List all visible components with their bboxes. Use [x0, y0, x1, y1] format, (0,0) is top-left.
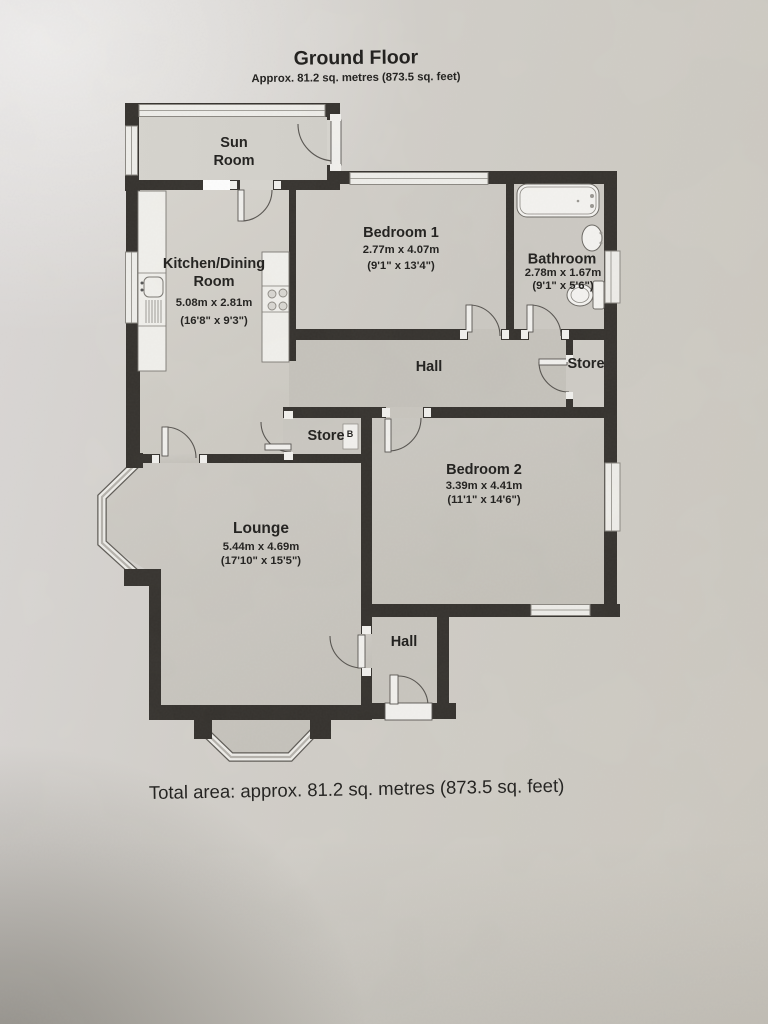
svg-text:Hall: Hall [391, 634, 418, 650]
svg-text:Store: Store [307, 428, 344, 444]
svg-text:Room: Room [193, 274, 234, 290]
svg-text:3.39m x 4.41m: 3.39m x 4.41m [446, 480, 523, 492]
svg-text:Sun: Sun [220, 135, 247, 151]
svg-text:Store: Store [567, 356, 604, 372]
svg-text:Room: Room [213, 153, 254, 169]
svg-text:Bedroom 1: Bedroom 1 [363, 225, 439, 241]
svg-text:(9'1" x 13'4"): (9'1" x 13'4") [367, 260, 435, 272]
svg-text:2.78m x 1.67m: 2.78m x 1.67m [525, 267, 602, 279]
svg-text:(17'10" x 15'5"): (17'10" x 15'5") [221, 555, 301, 567]
svg-text:Total area: approx. 81.2 sq. m: Total area: approx. 81.2 sq. metres (873… [149, 775, 565, 803]
svg-text:Bedroom 2: Bedroom 2 [446, 462, 522, 478]
svg-text:(9'1" x 5'6"): (9'1" x 5'6") [532, 280, 594, 292]
svg-text:(16'8" x 9'3"): (16'8" x 9'3") [180, 315, 248, 327]
svg-text:Lounge: Lounge [233, 520, 289, 537]
svg-text:(11'1" x 14'6"): (11'1" x 14'6") [447, 494, 520, 506]
svg-text:Ground Floor: Ground Floor [294, 46, 419, 69]
svg-text:Hall: Hall [416, 359, 443, 375]
svg-text:2.77m x 4.07m: 2.77m x 4.07m [363, 244, 440, 256]
svg-text:5.44m x 4.69m: 5.44m x 4.69m [223, 541, 300, 553]
svg-text:5.08m x 2.81m: 5.08m x 2.81m [176, 297, 253, 309]
svg-text:Kitchen/Dining: Kitchen/Dining [163, 256, 265, 272]
svg-text:B: B [347, 429, 354, 439]
svg-text:Approx. 81.2 sq. metres (873.5: Approx. 81.2 sq. metres (873.5 sq. feet) [251, 71, 460, 85]
svg-text:Bathroom: Bathroom [528, 252, 596, 268]
